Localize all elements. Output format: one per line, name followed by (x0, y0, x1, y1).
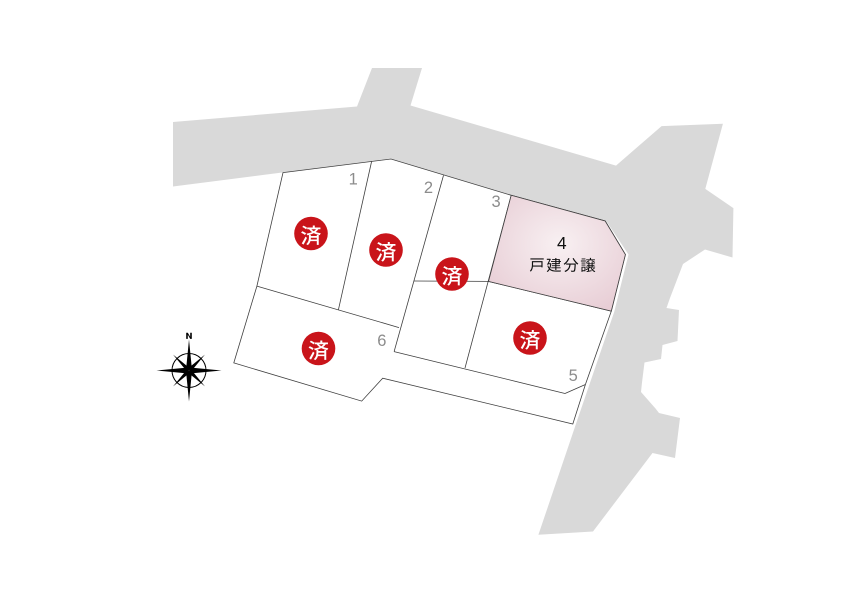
svg-text:2: 2 (424, 179, 433, 197)
svg-text:4: 4 (557, 233, 567, 253)
svg-text:6: 6 (377, 332, 386, 350)
svg-text:5: 5 (569, 367, 578, 385)
svg-text:3: 3 (492, 193, 501, 211)
svg-text:1: 1 (349, 170, 358, 188)
